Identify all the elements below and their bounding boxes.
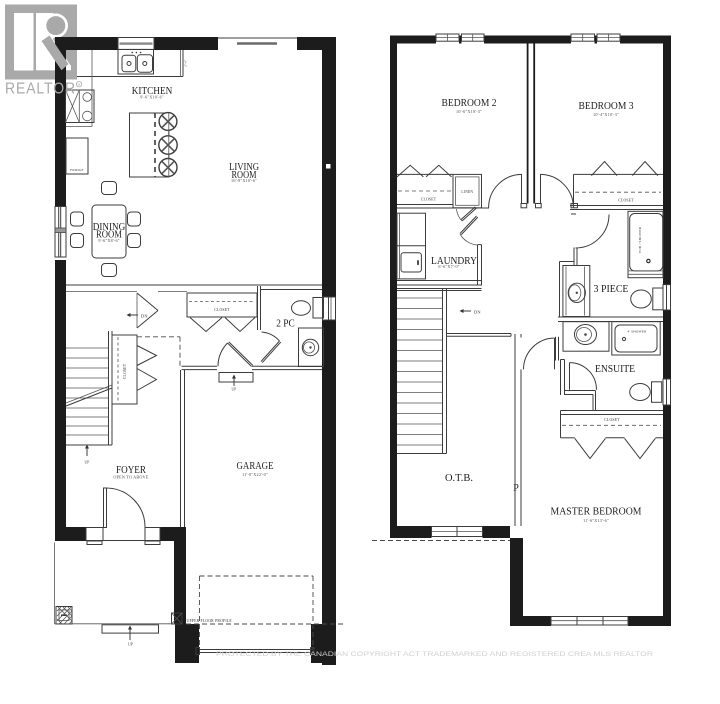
svg-text:10'-6"X10'-3": 10'-6"X10'-3" bbox=[456, 109, 482, 114]
svg-text:4' SHOWER: 4' SHOWER bbox=[627, 330, 647, 334]
svg-text:2'-6": 2'-6" bbox=[184, 59, 188, 67]
svg-text:UP: UP bbox=[128, 643, 133, 647]
svg-text:DN: DN bbox=[474, 309, 481, 314]
svg-text:BEDROOM 2: BEDROOM 2 bbox=[442, 97, 497, 109]
svg-text:UP: UP bbox=[85, 461, 90, 465]
svg-text:R: R bbox=[78, 82, 81, 87]
svg-text:10'-4"X10'-3": 10'-4"X10'-3" bbox=[593, 112, 619, 117]
svg-text:11'-0"X22'-0": 11'-0"X22'-0" bbox=[242, 472, 268, 477]
svg-text:REALTOR: REALTOR bbox=[5, 81, 76, 98]
svg-text:CLOSET: CLOSET bbox=[421, 198, 437, 202]
svg-text:9'-6"X10'-6": 9'-6"X10'-6" bbox=[140, 95, 164, 100]
svg-text:CLOSET: CLOSET bbox=[618, 199, 634, 203]
svg-text:OPEN TO ABOVE: OPEN TO ABOVE bbox=[113, 475, 148, 480]
svg-text:MASTER BEDROOM: MASTER BEDROOM bbox=[551, 506, 642, 518]
svg-text:2 PC: 2 PC bbox=[276, 318, 295, 330]
svg-text:BEDROOM 3: BEDROOM 3 bbox=[579, 100, 634, 112]
svg-text:O.T.B.: O.T.B. bbox=[445, 472, 473, 484]
svg-text:UPPER FLOOR PROFILE: UPPER FLOOR PROFILE bbox=[187, 619, 233, 623]
svg-text:P: P bbox=[513, 483, 519, 494]
svg-text:CLOSET: CLOSET bbox=[123, 363, 127, 379]
svg-text:3 PIECE: 3 PIECE bbox=[594, 283, 629, 295]
svg-text:CLOSET: CLOSET bbox=[214, 308, 230, 312]
svg-text:6'-6"X7'-0": 6'-6"X7'-0" bbox=[438, 264, 459, 269]
svg-text:ENSUITE: ENSUITE bbox=[595, 363, 635, 375]
svg-text:FRIDGE: FRIDGE bbox=[70, 168, 83, 172]
svg-text:GARAGE: GARAGE bbox=[237, 460, 274, 472]
svg-text:DN: DN bbox=[141, 313, 148, 318]
svg-text:9'-6"X8'-6": 9'-6"X8'-6" bbox=[98, 238, 119, 243]
svg-text:CLOSET: CLOSET bbox=[604, 418, 620, 422]
svg-text:UP: UP bbox=[232, 388, 237, 392]
svg-text:LINEN: LINEN bbox=[461, 190, 473, 194]
svg-text:TUB / SHOWER: TUB / SHOWER bbox=[638, 226, 642, 253]
svg-text:16'-9"X10'-6": 16'-9"X10'-6" bbox=[231, 178, 257, 183]
svg-text:PROTECTED BY THE CANADIAN COPY: PROTECTED BY THE CANADIAN COPYRIGHT ACT … bbox=[216, 651, 653, 658]
svg-text:11'-6"X13'-6": 11'-6"X13'-6" bbox=[583, 518, 609, 523]
